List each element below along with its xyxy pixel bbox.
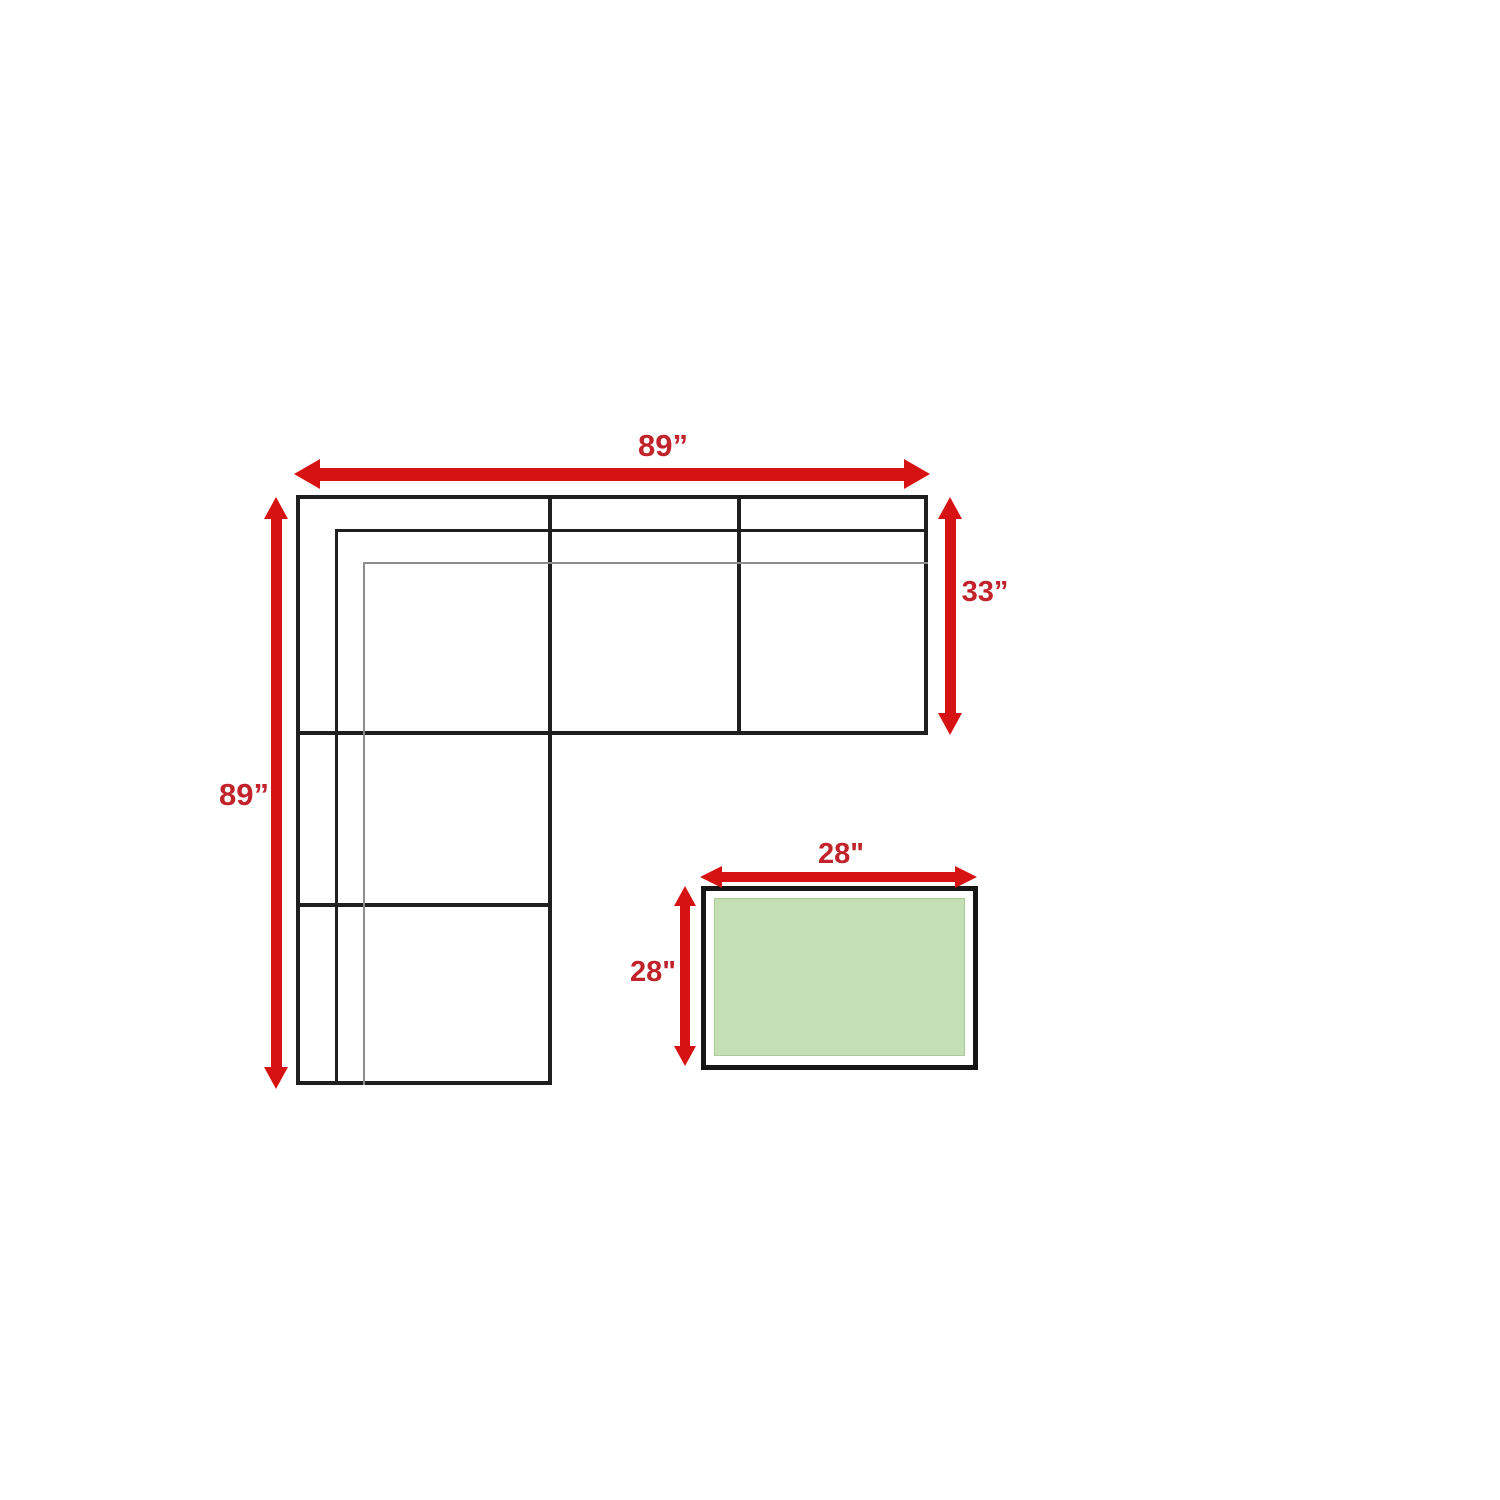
sofa-chaise-front-edge bbox=[296, 731, 928, 735]
sofa-backrest-line-vertical bbox=[335, 529, 338, 1085]
table-width-arrow-shaft bbox=[718, 872, 958, 882]
arrow-head-left-icon bbox=[294, 459, 320, 489]
sofa-length-label: 89” bbox=[199, 779, 289, 810]
arrow-head-up-icon bbox=[264, 497, 288, 519]
arrow-head-down-icon bbox=[938, 713, 962, 735]
dimension-diagram: 89” 33” 89” 28" 28" bbox=[0, 0, 1500, 1500]
arrow-head-up-icon bbox=[938, 497, 962, 519]
sofa-depth-label: 33” bbox=[945, 578, 1025, 607]
sofa-left-edge bbox=[296, 495, 300, 1085]
table-top-surface bbox=[714, 898, 965, 1056]
sofa-cushion-line-horizontal bbox=[363, 562, 928, 564]
table-width-label: 28" bbox=[791, 840, 891, 869]
sofa-width-label: 89” bbox=[600, 430, 726, 461]
sofa-width-arrow-shaft bbox=[316, 468, 908, 481]
sofa-backrest-line-horizontal bbox=[335, 529, 928, 532]
arrow-head-up-icon bbox=[674, 886, 696, 906]
sofa-top-edge bbox=[296, 495, 928, 499]
arrow-head-right-icon bbox=[904, 459, 930, 489]
arrow-head-left-icon bbox=[700, 866, 722, 888]
arrow-head-right-icon bbox=[955, 866, 977, 888]
arrow-head-down-icon bbox=[264, 1067, 288, 1089]
table-depth-label: 28" bbox=[608, 958, 698, 987]
arrow-head-down-icon bbox=[674, 1046, 696, 1066]
sofa-cushion-line-vertical bbox=[363, 562, 365, 1085]
sofa-depth-arrow-shaft bbox=[945, 513, 956, 715]
sofa-leg-right-edge bbox=[548, 495, 552, 1085]
